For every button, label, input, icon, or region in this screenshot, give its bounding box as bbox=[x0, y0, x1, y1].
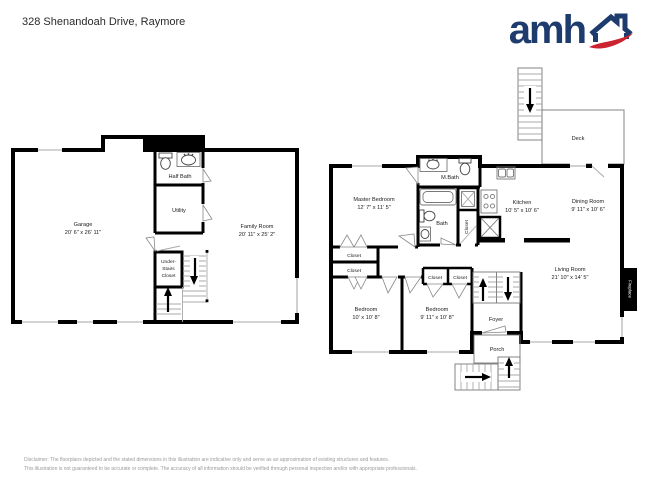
porch bbox=[455, 335, 520, 390]
shower-icon bbox=[458, 188, 478, 210]
deck-label: Deck bbox=[572, 136, 585, 142]
disclaimer-line-2: This illustration is not guaranteed to b… bbox=[24, 465, 417, 474]
bedroom-closet-1-label: Closet bbox=[428, 275, 443, 281]
mbath-label: M.Bath bbox=[441, 175, 459, 181]
kitchen-fixtures bbox=[481, 167, 515, 213]
bath-closet-label: Closet bbox=[464, 219, 470, 234]
bath-sink-icon bbox=[421, 230, 429, 239]
kitchen-half-wall-2 bbox=[524, 238, 570, 243]
living-room-dims: 21' 10" x 14' 5" bbox=[552, 275, 589, 281]
main-floor-plan: Deck bbox=[331, 68, 637, 390]
hall-closet-1-label: Closet bbox=[347, 253, 362, 259]
lower-solid-wall-block bbox=[143, 135, 203, 152]
stairs-up-arrow bbox=[164, 287, 172, 312]
dining-room-dims: 9' 11" x 10' 6" bbox=[571, 207, 604, 213]
bedroom-closet-2-label: Closet bbox=[453, 275, 468, 281]
main-windows bbox=[352, 163, 625, 355]
family-room-label: Family Room bbox=[241, 224, 274, 230]
stove-icon bbox=[481, 190, 497, 213]
bedroom-2-dims: 9' 11" x 10' 8" bbox=[420, 315, 453, 321]
master-bedroom-dims: 12' 7" x 11' 5" bbox=[357, 205, 390, 211]
kitchen-label: Kitchen bbox=[513, 200, 532, 206]
garage-dims: 20' 6" x 26' 11" bbox=[65, 230, 101, 236]
porch-label: Porch bbox=[490, 347, 505, 353]
sink-icon bbox=[182, 155, 196, 165]
bath-label: Bath bbox=[436, 221, 448, 227]
mbath-toilet-icon bbox=[459, 159, 471, 164]
deck: Deck bbox=[518, 68, 624, 164]
bedroom-1-dims: 10' x 10' 8" bbox=[352, 315, 379, 321]
kitchen-dims: 10' 5" x 10' 6" bbox=[505, 208, 539, 214]
disclaimer-line-1: Disclaimer: The floorplans depicted and … bbox=[24, 456, 417, 465]
under-stairs-closet-label-2: Stairs bbox=[162, 266, 175, 272]
garage-label: Garage bbox=[74, 222, 93, 228]
half-bath-label: Half Bath bbox=[168, 174, 191, 180]
main-interior-walls bbox=[331, 166, 521, 352]
mbath-fixtures bbox=[420, 159, 471, 175]
under-stairs-closet-label-3: Closet bbox=[162, 273, 177, 279]
foyer-label: Foyer bbox=[489, 317, 503, 323]
hall-closet-2-label: Closet bbox=[347, 268, 362, 274]
half-bath-fixtures bbox=[159, 153, 200, 170]
family-room-dims: 20' 11" x 25' 2" bbox=[239, 232, 275, 238]
bath-fixtures bbox=[420, 189, 457, 241]
lower-floor-plan: Garage 20' 6" x 26' 11" Half Bath Utilit… bbox=[13, 135, 300, 325]
refrigerator-icon bbox=[480, 217, 500, 238]
dining-room-label: Dining Room bbox=[572, 199, 605, 205]
fireplace-label: Fireplace bbox=[628, 280, 633, 298]
bedroom-2-label: Bedroom bbox=[426, 307, 449, 313]
floor-plans-canvas: Garage 20' 6" x 26' 11" Half Bath Utilit… bbox=[0, 0, 650, 488]
fireplace: Fireplace bbox=[620, 268, 637, 311]
bedroom-1-label: Bedroom bbox=[355, 307, 378, 313]
floor-plan-page: 328 Shenandoah Drive, Raymore amh bbox=[0, 0, 650, 488]
mbath-sink-icon bbox=[427, 160, 439, 169]
living-room-label: Living Room bbox=[554, 267, 585, 273]
bath-toilet-icon bbox=[420, 210, 425, 222]
under-stairs-closet-label-1: Under- bbox=[161, 259, 176, 265]
utility-label: Utility bbox=[172, 208, 186, 214]
disclaimer: Disclaimer: The floorplans depicted and … bbox=[24, 456, 417, 474]
main-stairs bbox=[473, 272, 520, 303]
master-bedroom-label: Master Bedroom bbox=[353, 197, 395, 203]
